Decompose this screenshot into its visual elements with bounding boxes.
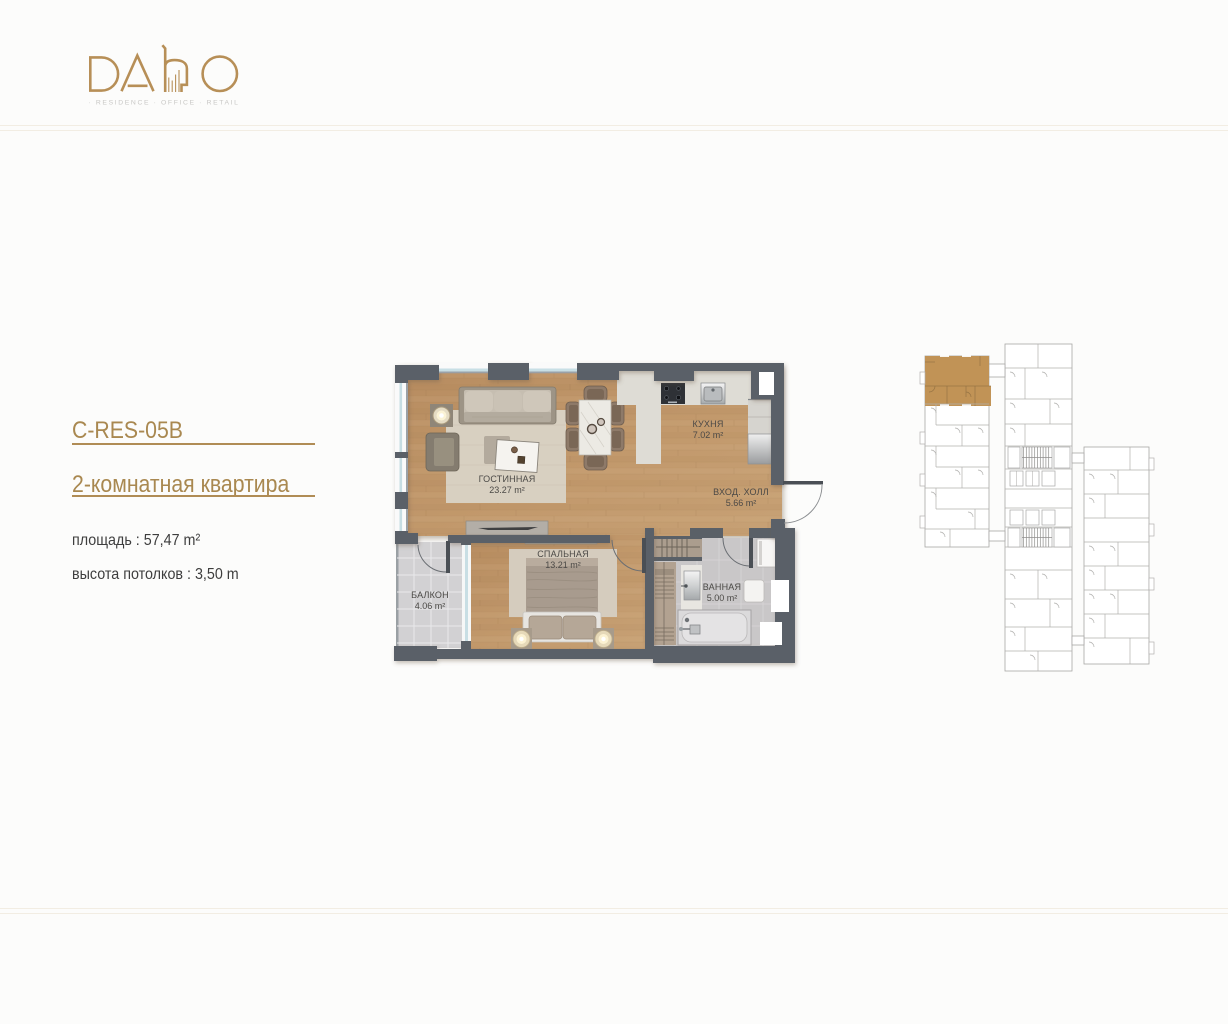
- svg-text:СПАЛЬНАЯ: СПАЛЬНАЯ: [537, 549, 589, 559]
- svg-text:4.06 m²: 4.06 m²: [415, 601, 446, 611]
- svg-text:ВАННАЯ: ВАННАЯ: [703, 582, 741, 592]
- svg-text:23.27 m²: 23.27 m²: [489, 485, 525, 495]
- svg-text:5.66 m²: 5.66 m²: [726, 498, 757, 508]
- svg-text:БАЛКОН: БАЛКОН: [411, 590, 449, 600]
- svg-text:ВХОД. ХОЛЛ: ВХОД. ХОЛЛ: [713, 487, 769, 497]
- svg-text:ГОСТИННАЯ: ГОСТИННАЯ: [479, 474, 536, 484]
- svg-text:5.00 m²: 5.00 m²: [707, 593, 738, 603]
- svg-text:7.02 m²: 7.02 m²: [693, 430, 724, 440]
- svg-text:13.21 m²: 13.21 m²: [545, 560, 581, 570]
- svg-text:КУХНЯ: КУХНЯ: [692, 419, 723, 429]
